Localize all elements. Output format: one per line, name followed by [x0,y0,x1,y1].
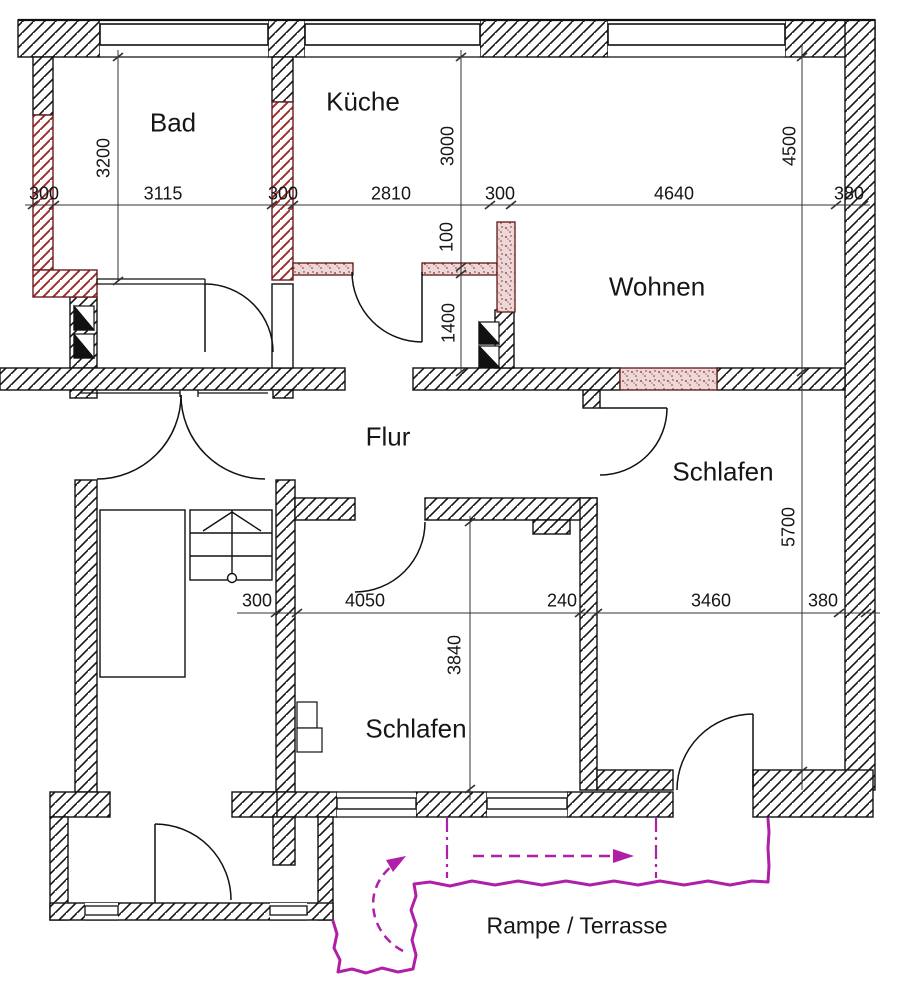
shaft-right [479,322,499,367]
dim-label-top-3: 2810 [371,184,411,205]
room-label-wohnen: Wohnen [609,272,705,303]
dim-label-wohnen-depth: 4500 [780,126,801,166]
room-label-kueche: Küche [326,87,400,118]
dim-label-bottom-4: 380 [808,591,838,612]
dim-label-bottom-0: 300 [242,591,272,612]
door-schlafen-bottom [355,522,425,592]
flur-door-frame [80,390,268,397]
window-bad [100,21,268,57]
floor-plan: Bad Küche Wohnen Flur Schlafen Schlafen … [0,0,916,1001]
door-vestibule [155,824,231,903]
window-schlafen-bottom-2 [487,792,567,817]
window-wohnen [608,21,785,57]
door-bad [205,284,273,352]
room-label-bad: Bad [150,108,196,139]
terrace-outline [333,819,769,973]
dim-label-schlafen-bottom-depth: 3840 [445,635,466,675]
dim-label-schlafen-depth: 5700 [779,507,800,547]
room-label-flur: Flur [366,422,411,453]
dim-label-top-5: 4640 [654,184,694,205]
dim-label-top-1: 3115 [144,184,183,205]
ramp-terrace-graphics [333,818,769,973]
window-vestibule-1 [85,903,118,920]
dim-label-top-0: 300 [29,184,59,205]
window-vestibule-2 [270,903,307,920]
dim-label-new-wall: 100 [437,222,458,252]
door-schlafen-right [600,408,667,475]
direction-arrow-curved [373,856,406,951]
dim-label-flur-zone: 1400 [439,303,460,343]
dim-label-top-2: 300 [268,184,298,205]
window-kueche [305,21,480,57]
room-label-schlafen-right: Schlafen [672,457,773,488]
dim-label-top-6: 380 [834,184,864,205]
bad-south-partition [97,279,205,284]
door-terrace [677,714,753,790]
direction-arrow-straight [473,849,634,863]
dim-label-bottom-1: 4050 [345,591,385,612]
door-jamb-bad [272,284,293,368]
dim-label-bottom-2: 240 [547,591,577,612]
dim-label-bottom-3: 3460 [691,591,731,612]
dim-label-kueche-depth: 3000 [438,126,459,166]
fixture-schlafen-bottom [297,702,322,752]
dim-label-bad-width: 3200 [94,138,115,178]
stair-landing [100,510,185,677]
window-schlafen-bottom-1 [337,792,416,817]
door-flur-double [97,395,265,479]
dim-label-top-4: 300 [485,184,515,205]
room-label-rampe-terrasse: Rampe / Terrasse [486,913,667,940]
room-label-schlafen-bottom: Schlafen [365,714,466,745]
door-kueche [352,272,422,342]
